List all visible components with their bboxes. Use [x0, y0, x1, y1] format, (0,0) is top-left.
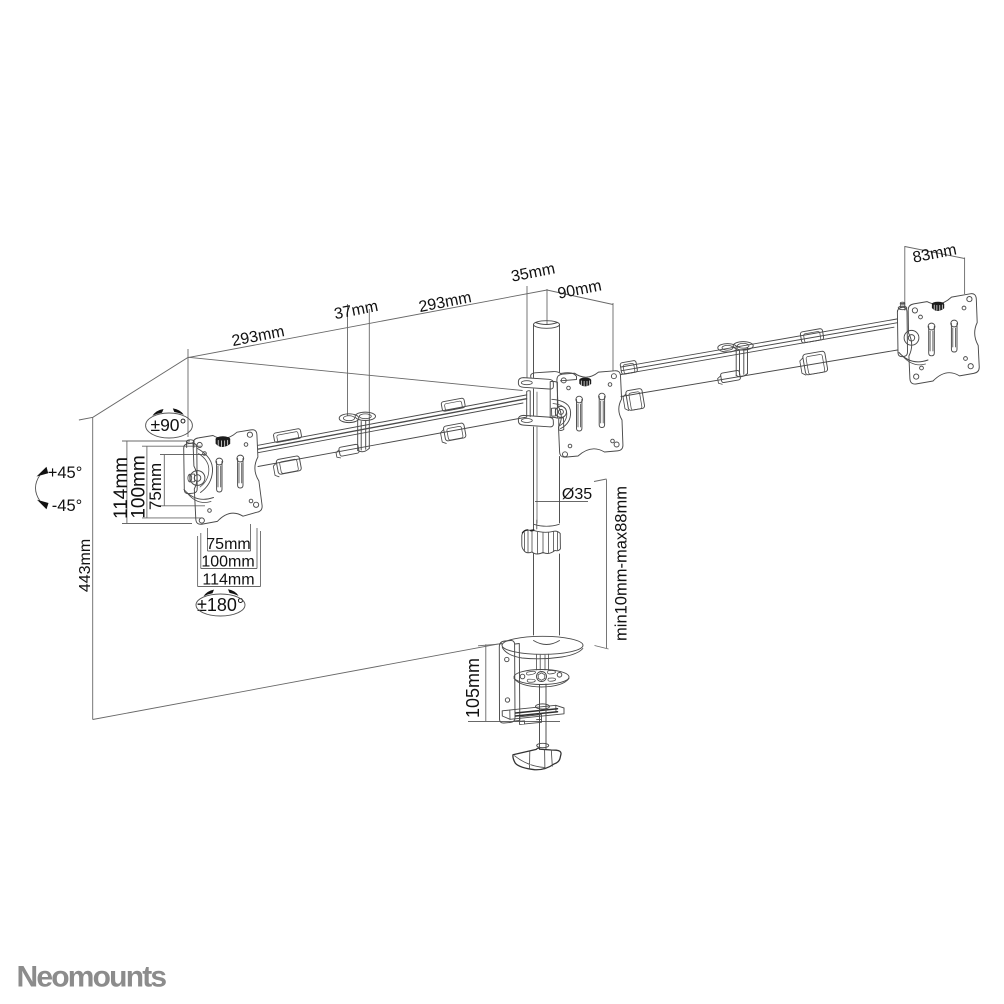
svg-text:Neomounts: Neomounts [17, 961, 167, 994]
svg-text:Ø35: Ø35 [562, 486, 592, 503]
svg-text:75mm: 75mm [146, 463, 165, 510]
svg-text:105mm: 105mm [463, 658, 483, 718]
svg-text:100mm: 100mm [201, 554, 254, 571]
svg-text:±90°: ±90° [150, 415, 186, 435]
svg-text:+45°: +45° [48, 464, 83, 482]
svg-text:min10mm-max88mm: min10mm-max88mm [613, 486, 631, 641]
svg-text:443mm: 443mm [77, 539, 94, 592]
svg-text:-45°: -45° [52, 497, 82, 515]
svg-text:75mm: 75mm [206, 536, 250, 553]
svg-text:±180°: ±180° [197, 595, 244, 615]
svg-text:114mm: 114mm [202, 572, 254, 589]
